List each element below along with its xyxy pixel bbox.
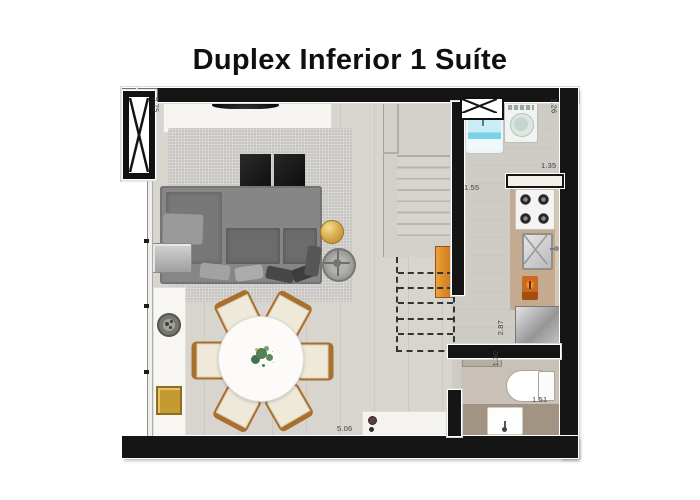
sofa-blanket [162,213,203,244]
plant-centerpiece [256,348,267,359]
window-frame [123,91,155,179]
kitchen-sink [522,233,553,270]
gold-side-table [320,220,344,244]
facade-tick [144,304,149,308]
dim-service-width: 1.26 [550,98,558,113]
sofa-seat-cushion [226,228,280,264]
stove [515,189,555,230]
dim-bath-length: 1.51 [532,396,547,404]
stair-landing-line [397,102,399,154]
sofa-pillow [199,262,230,280]
facade-tick [144,239,149,243]
dim-kitchen-run: 2.87 [497,320,505,335]
window-x-icon [129,97,149,173]
bathroom-sink [487,407,523,435]
dim-living-width: 5.06 [337,425,352,433]
sink-cross-icon [522,233,549,266]
kitchen-decor-orange [522,276,538,300]
dim-living-height: 5.75 [152,97,160,112]
wall-bathroom-north [448,345,560,358]
washing-machine [504,102,538,143]
wall-stairs-east [452,102,464,295]
white-margin-left [122,180,147,436]
metal-side-table [322,248,356,282]
decor-gold-box [156,386,182,415]
stair-landing-line [383,152,399,154]
page-title: Duplex Inferior 1 Suíte [0,44,700,77]
stair-treads [397,155,452,237]
dim-counter-length: 1.35 [541,162,556,170]
dining-table [218,316,304,402]
entry-console-decor [369,427,374,432]
entry-console [362,411,450,438]
vent-shaft [460,97,504,120]
floor-plan: Duplex Inferior 1 Suíte [0,0,700,500]
fridge [515,306,560,349]
laundry-sink [466,117,503,153]
side-table-grey [152,243,192,273]
kitchen-pass-counter [506,174,564,188]
wall-bathroom-west [448,390,461,436]
stairs-dashed-above [396,257,455,352]
window-glass [129,97,149,173]
wall-top [122,88,578,102]
decor-plate [157,313,181,337]
dim-hall-width: 1.55 [464,184,479,192]
wall-right [560,88,578,458]
shaft-x-icon [462,99,497,113]
facade-tick [144,370,149,374]
wall-bottom [122,436,578,458]
dim-bath-width: 1.30 [492,351,500,366]
entry-console-decor [368,416,377,425]
